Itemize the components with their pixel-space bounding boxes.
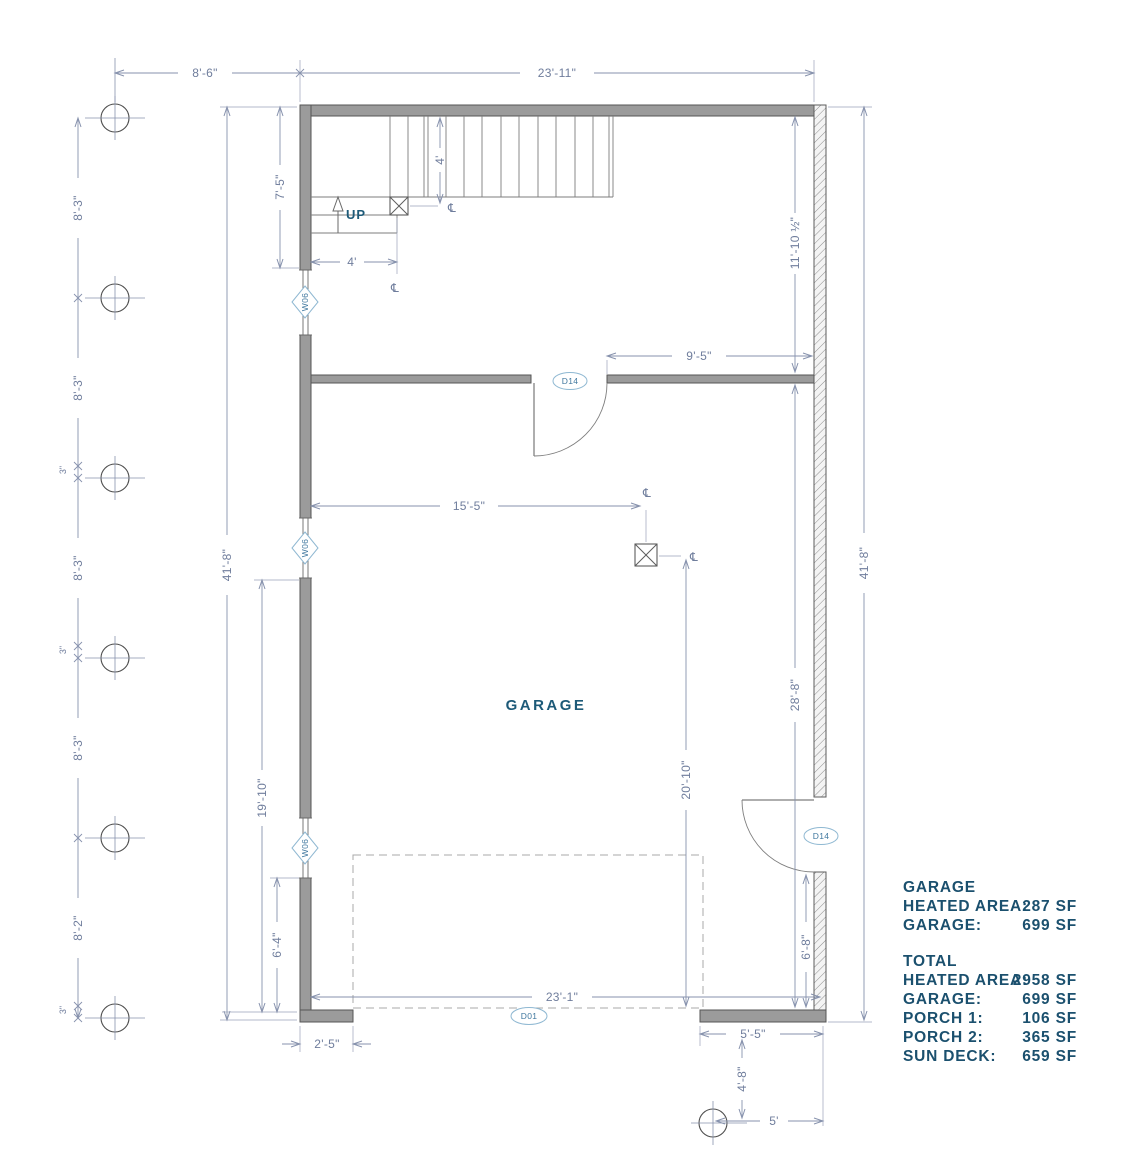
garage-door-tag-label: D01 <box>521 1011 538 1021</box>
summary-value: 659 SF <box>1022 1048 1077 1065</box>
summary-value: 699 SF <box>1022 991 1077 1008</box>
interior-wall-right <box>607 375 814 383</box>
dimensions: 8'-6" 23'-11" 8'-3" 8'-3" 8'-3" 8'-3" 8'… <box>58 60 872 1128</box>
centerline-symbol: ℄ <box>447 201 456 215</box>
dim-offset-3in: 3" <box>58 646 68 654</box>
summary-label: GARAGE: <box>903 917 982 934</box>
summary-value: 106 SF <box>1022 1010 1077 1027</box>
summary-label: PORCH 2: <box>903 1029 983 1046</box>
tags: W06 W06 W06 D14 D14 D01 <box>292 286 838 1025</box>
right-wall-lower <box>814 872 826 1010</box>
door-tag-label: D14 <box>813 831 830 841</box>
staircase: UP <box>311 116 613 233</box>
right-wall-upper <box>814 105 826 797</box>
summary-label: SUN DECK: <box>903 1048 996 1065</box>
interior-wall-left <box>311 375 531 383</box>
dim-left-seg2: 8'-3" <box>71 375 85 400</box>
garage-door-tag: D01 <box>511 1008 547 1025</box>
summary-label: HEATED AREA: <box>903 898 1028 915</box>
walls <box>300 105 826 1022</box>
centerline-symbol: ℄ <box>390 281 399 295</box>
dim-front-left: 2'-5" <box>314 1037 339 1051</box>
column-grid <box>85 58 747 1145</box>
grid-bubble <box>85 816 145 860</box>
dim-stair-run-v: 4' <box>433 155 447 165</box>
dim-top-left: 8'-6" <box>192 66 217 80</box>
stair-treads <box>390 116 613 197</box>
door-tag: D14 <box>804 828 838 845</box>
dim-garage-opening: 23'-1" <box>546 990 578 1004</box>
grid-bubble <box>691 1101 747 1145</box>
floor-plan-drawing: UP 8'-6" 23'-11" <box>0 0 1140 1152</box>
grid-bubble <box>85 456 145 500</box>
left-wall-seg4 <box>300 878 311 1010</box>
summary-value: 2958 SF <box>1013 972 1077 989</box>
summary-value: 287 SF <box>1022 898 1077 915</box>
dim-left-seg3: 8'-3" <box>71 555 85 580</box>
dim-left-seg1: 8'-3" <box>71 195 85 220</box>
dim-post-front: 20'-10" <box>679 760 693 799</box>
interior-door <box>534 383 607 456</box>
dim-front-right: 5'-5" <box>740 1027 765 1041</box>
window-tag: W06 <box>292 532 318 564</box>
window-tag-label: W06 <box>300 293 310 311</box>
grid-bubble <box>85 96 145 140</box>
window-tag-label: W06 <box>300 539 310 557</box>
summary-label: GARAGE: <box>903 991 982 1008</box>
summary-label: PORCH 1: <box>903 1010 983 1027</box>
left-wall-seg2 <box>300 335 311 518</box>
dim-stair-depth: 7'-5" <box>273 174 287 199</box>
door-tag: D14 <box>553 373 587 390</box>
left-wall-seg3 <box>300 578 311 818</box>
dim-overall-left: 41'-8" <box>220 549 234 581</box>
dim-win-bottom: 6'-4" <box>270 932 284 957</box>
dim-offset-3in: 3" <box>58 1006 68 1014</box>
summary-section2-title: TOTAL <box>903 953 957 970</box>
dim-porch-width: 5' <box>769 1114 779 1128</box>
dim-left-seg5: 8'-2" <box>71 915 85 940</box>
up-label: UP <box>346 207 366 222</box>
dim-hall: 9'-5" <box>686 349 711 363</box>
dim-door-side: 6'-8" <box>799 934 813 959</box>
dim-overall-right: 41'-8" <box>857 547 871 579</box>
window-tag-label: W06 <box>300 839 310 857</box>
window-tag: W06 <box>292 286 318 318</box>
door-tag-label: D14 <box>562 376 579 386</box>
dim-left-lower: 19'-10" <box>255 778 269 817</box>
grid-bubble <box>85 636 145 680</box>
top-wall <box>300 105 814 116</box>
summary-value: 365 SF <box>1022 1029 1077 1046</box>
doors <box>534 383 814 872</box>
dim-post-x: 15'-5" <box>453 499 485 513</box>
garage-door-slab-outline <box>353 855 703 1008</box>
dim-porch-depth: 4'-8" <box>735 1066 749 1091</box>
dim-upper-room: 11'-10 ½" <box>788 217 802 269</box>
exterior-side-door <box>742 800 814 872</box>
bottom-wall-left <box>300 1010 353 1022</box>
dim-left-seg4: 8'-3" <box>71 735 85 760</box>
summary-label: HEATED AREA: <box>903 972 1028 989</box>
bottom-wall-right <box>700 1010 826 1022</box>
garage-post <box>635 510 681 566</box>
stair-post <box>390 197 408 215</box>
left-wall-seg1 <box>300 105 311 270</box>
room-label: GARAGE <box>506 697 587 714</box>
dim-stair-run-h: 4' <box>347 255 357 269</box>
dim-top-main: 23'-11" <box>538 66 576 80</box>
centerline-symbol: ℄ <box>689 550 698 564</box>
centerline-symbol: ℄ <box>642 486 651 500</box>
dim-offset-3in: 3" <box>58 466 68 474</box>
grid-bubble <box>85 276 145 320</box>
summary-section1-title: GARAGE <box>903 879 976 896</box>
grid-bubble <box>85 996 145 1040</box>
summary-value: 699 SF <box>1022 917 1077 934</box>
floor-plan-page: UP 8'-6" 23'-11" <box>0 0 1140 1152</box>
window-tag: W06 <box>292 832 318 864</box>
area-summary: GARAGE HEATED AREA: 287 SF GARAGE: 699 S… <box>903 879 1077 1065</box>
dim-garage-depth: 28'-8" <box>788 679 802 711</box>
